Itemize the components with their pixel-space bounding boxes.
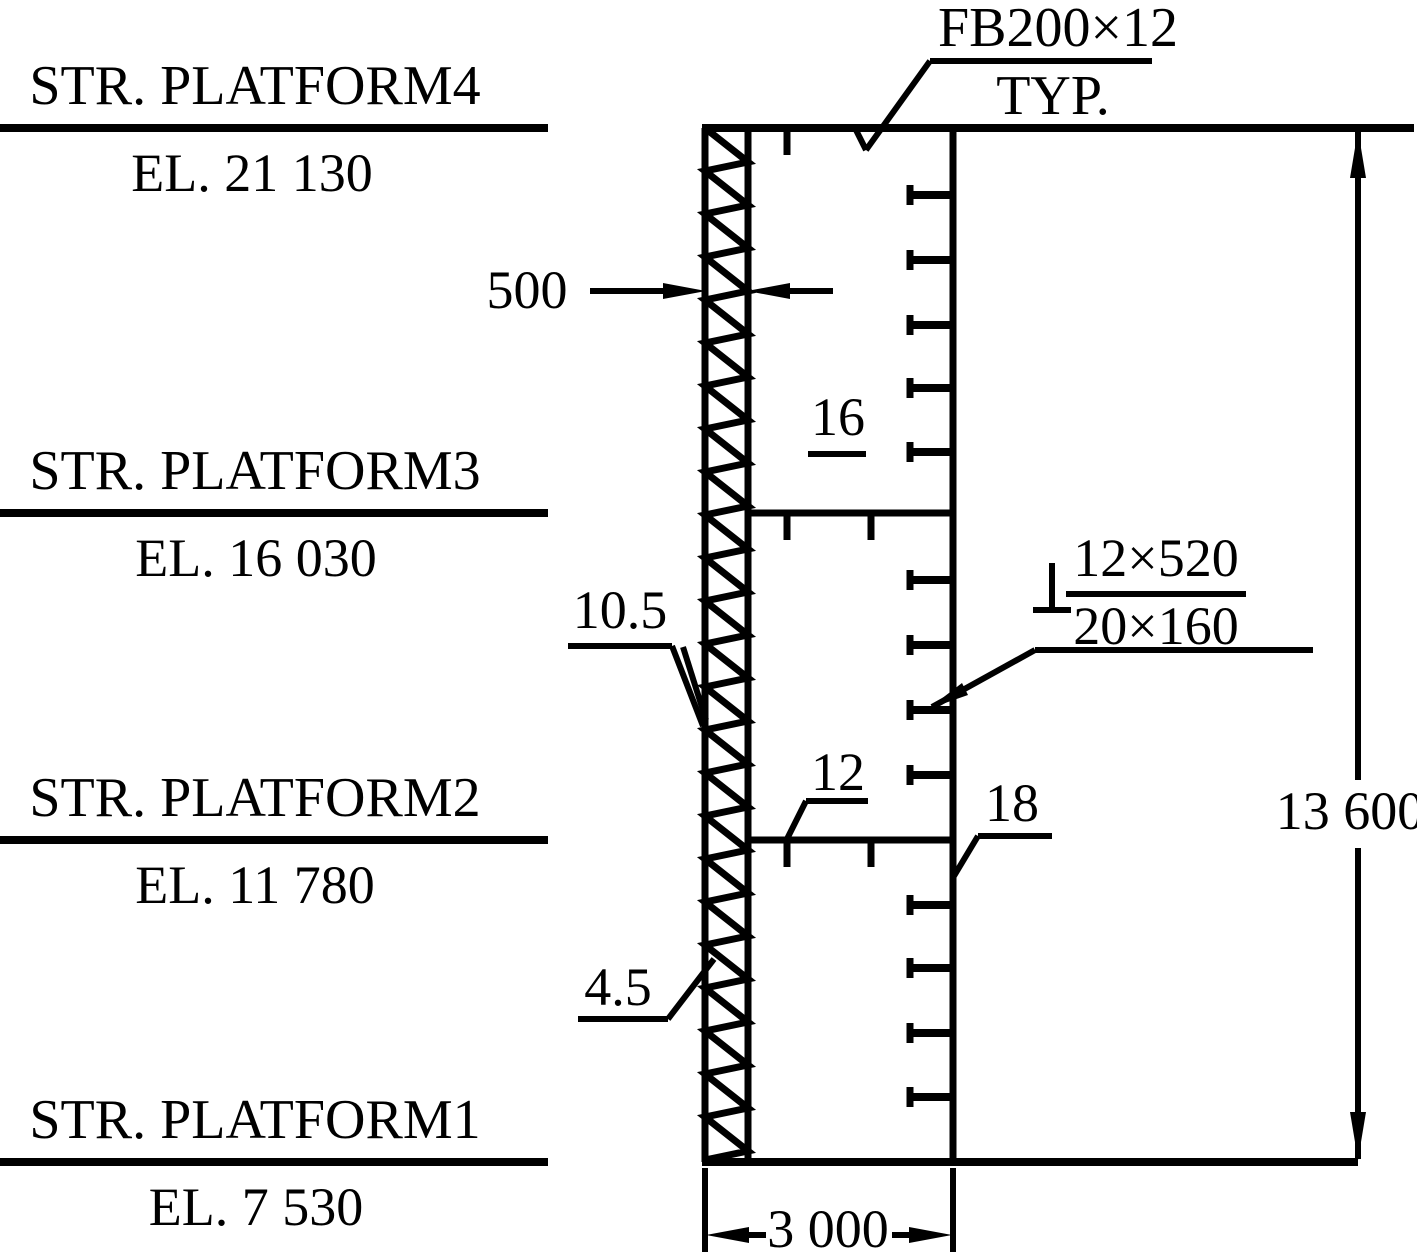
platform4-name-label: STR. PLATFORM4: [29, 58, 480, 114]
elevation-drawing: STR. PLATFORM4 EL. 21 130 STR. PLATFORM3…: [0, 0, 1417, 1255]
flat-bar-leader-line: [866, 61, 930, 150]
width-dim-arrow-left: [706, 1227, 749, 1243]
flange-thickness-label: 18: [985, 776, 1039, 830]
platform3-name-label: STR. PLATFORM3: [29, 443, 480, 499]
platform1-elevation-label: EL. 7 530: [149, 1180, 363, 1234]
typical-label: TYP.: [996, 68, 1110, 124]
column-width-dimension-label: 3 000: [767, 1202, 889, 1255]
gap-dim-arrow-left: [663, 283, 706, 299]
weld-spec-denominator-label: 20×160: [1073, 599, 1238, 653]
web-thickness-label: 16: [811, 390, 865, 444]
platform4-elevation-label: EL. 21 130: [131, 146, 372, 200]
gap-dim-arrow-right: [747, 283, 790, 299]
weld-spec-leader-arrow: [928, 683, 968, 709]
weld-size-lower-label: 4.5: [584, 960, 652, 1014]
zigzag-hatch: [705, 128, 748, 1160]
weld-spec-numerator-label: 12×520: [1073, 531, 1238, 585]
gap-width-dimension-label: 500: [487, 263, 568, 317]
splice-thickness-leader: [787, 801, 806, 839]
platform2-elevation-label: EL. 11 780: [135, 858, 374, 912]
stud-marks: [910, 185, 953, 1107]
platform1-name-label: STR. PLATFORM1: [29, 1092, 480, 1148]
total-height-arrow-bottom: [1350, 1112, 1366, 1160]
total-height-arrow-top: [1350, 130, 1366, 178]
splice-thickness-label: 12: [811, 745, 865, 799]
platform3-elevation-label: EL. 16 030: [135, 531, 376, 585]
total-height-dimension-label: 13 600: [1276, 784, 1417, 838]
flange-thickness-leader: [954, 836, 978, 876]
platform2-name-label: STR. PLATFORM2: [29, 770, 480, 826]
flat-bar-callout-label: FB200×12: [938, 0, 1178, 56]
weld-size-upper-label: 10.5: [573, 583, 668, 637]
width-dim-arrow-right: [909, 1227, 952, 1243]
